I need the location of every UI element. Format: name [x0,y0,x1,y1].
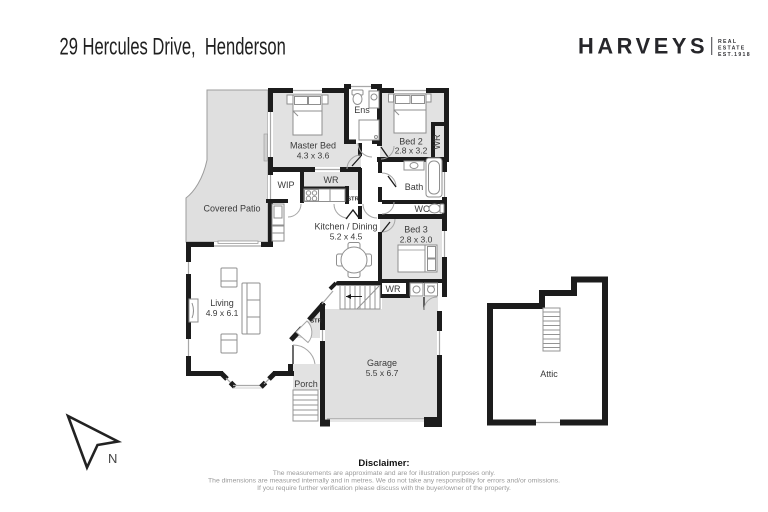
svg-text:WR: WR [386,284,401,294]
svg-text:Living: Living [210,298,234,308]
svg-text:WC: WC [415,204,430,214]
svg-text:4.9 x 6.1: 4.9 x 6.1 [206,308,239,318]
svg-text:STR: STR [310,319,322,325]
svg-text:Disclaimer:: Disclaimer: [358,458,409,469]
svg-text:29 Hercules Drive, Henderson: 29 Hercules Drive, Henderson [60,34,286,61]
svg-text:WIP: WIP [278,180,295,190]
svg-text:ESTATE: ESTATE [718,46,746,52]
svg-text:5.5 x 6.7: 5.5 x 6.7 [366,368,399,378]
svg-text:2.8 x 3.2: 2.8 x 3.2 [395,146,428,156]
svg-text:Porch: Porch [294,379,318,389]
svg-text:N: N [108,451,117,466]
svg-text:The measurements are approxima: The measurements are approximate and are… [273,470,496,477]
svg-text:EST.1918: EST.1918 [718,52,751,58]
svg-text:Ens: Ens [354,105,370,115]
svg-text:WR: WR [432,134,442,149]
svg-text:REAL: REAL [718,39,737,45]
svg-text:Covered Patio: Covered Patio [203,204,260,214]
svg-text:Bath: Bath [405,182,424,192]
svg-text:The dimensions are measured in: The dimensions are measured internally a… [208,478,560,485]
svg-text:WR: WR [324,175,339,185]
svg-text:Bed 3: Bed 3 [404,225,428,235]
svg-text:Attic: Attic [540,369,558,379]
svg-text:HARVEYS: HARVEYS [578,34,708,59]
svg-text:4.3 x 3.6: 4.3 x 3.6 [297,151,330,161]
svg-text:5.2 x 4.5: 5.2 x 4.5 [330,232,363,242]
svg-text:Garage: Garage [367,358,397,368]
svg-text:2.8 x 3.0: 2.8 x 3.0 [400,235,433,245]
svg-text:Master Bed: Master Bed [290,141,336,151]
svg-text:Kitchen / Dining: Kitchen / Dining [314,222,377,232]
svg-text:STR: STR [347,197,359,203]
svg-text:If you require further verific: If you require further verification plea… [257,485,511,492]
